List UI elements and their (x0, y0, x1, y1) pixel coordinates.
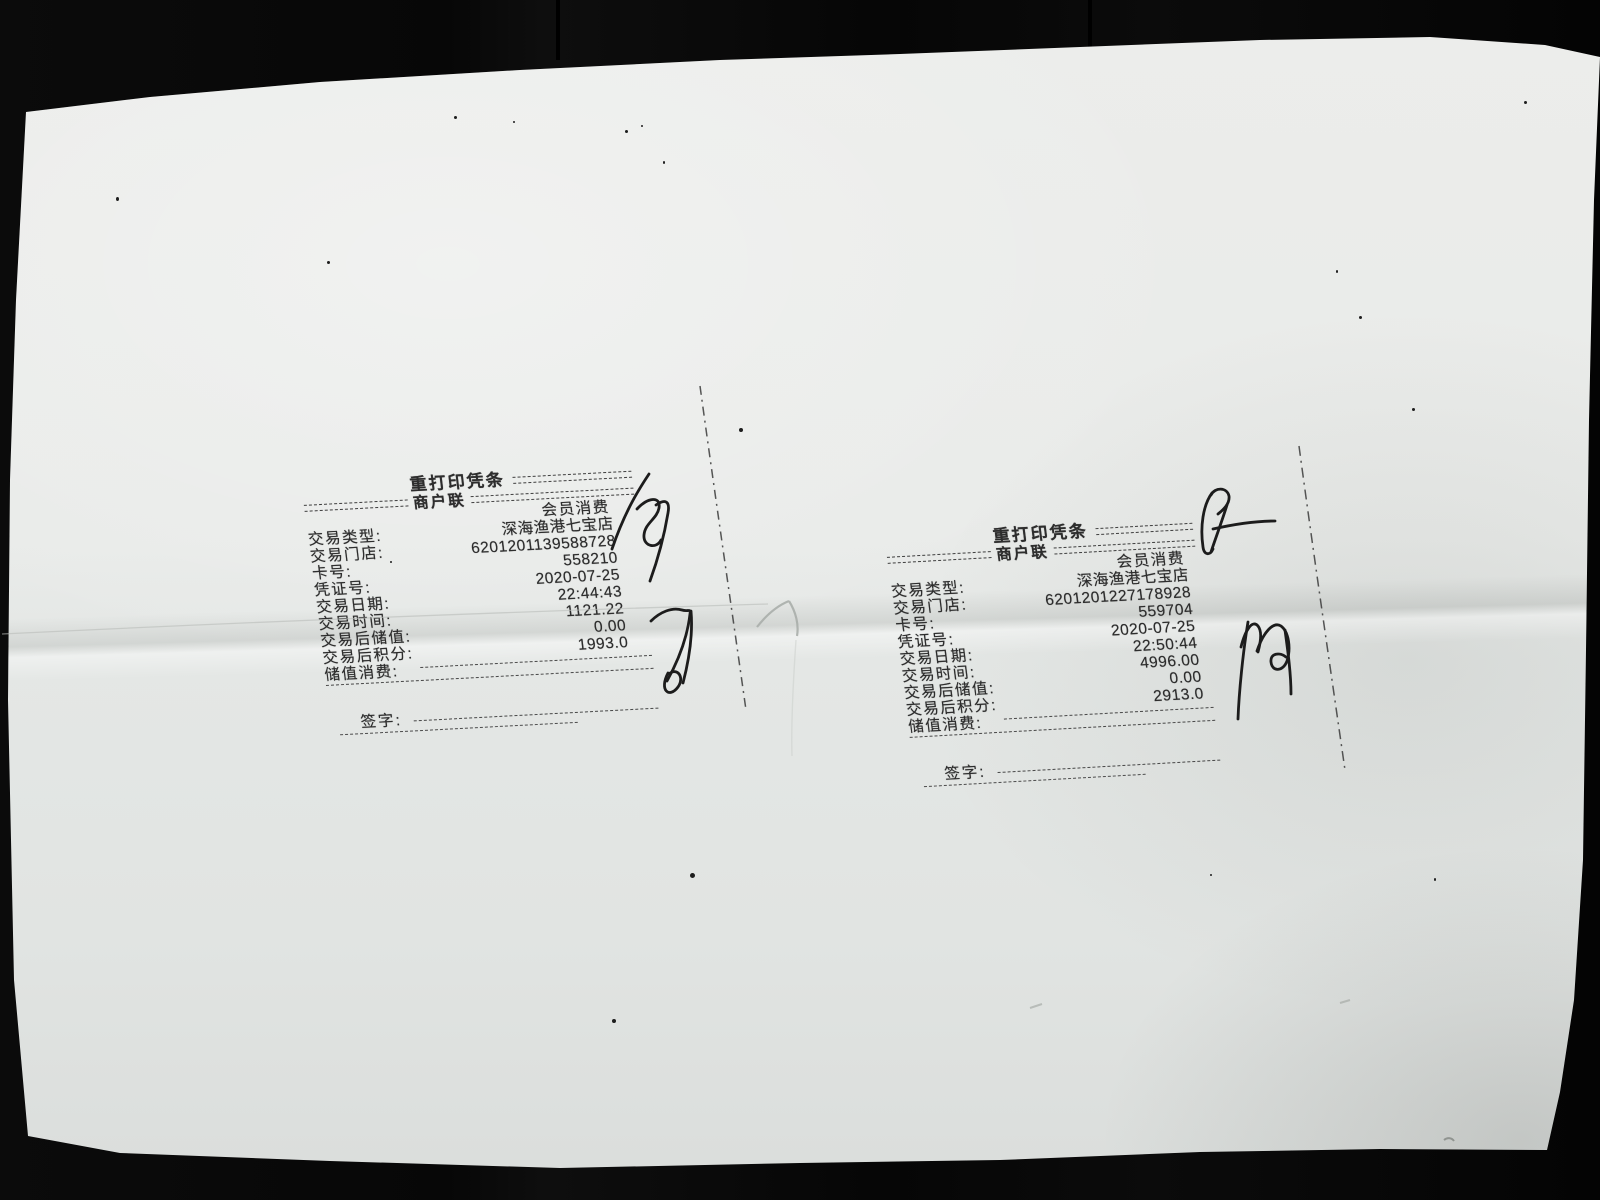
speck (1336, 270, 1338, 273)
paper-sheet (0, 0, 1600, 1200)
signature-dashed-line (412, 695, 658, 722)
speck (1434, 878, 1436, 881)
speck (663, 161, 665, 164)
row-value (1205, 702, 1217, 719)
title-indent (885, 537, 993, 543)
speck (641, 125, 643, 127)
copy-label: 商户联 (990, 540, 1055, 565)
receipt-rows: 交易类型: 深海渔港七宝店 交易门店: 6201201139588728 卡号:… (307, 514, 655, 684)
speck (1359, 316, 1362, 319)
row-value (629, 650, 655, 668)
speck (690, 873, 695, 878)
speck (513, 121, 515, 123)
speck (116, 197, 119, 201)
speck (1412, 408, 1415, 411)
title-indent (302, 485, 410, 491)
horizontal-fold-crease (0, 574, 1600, 683)
receipt-rows: 交易类型: 深海渔港七宝店 交易门店: 6201201227178928 卡号:… (890, 567, 1217, 736)
speck (454, 116, 457, 119)
speck (1210, 874, 1212, 876)
receipt-left: 重打印凭条 商户联 会员消费 交易类型: 深海渔港七宝店 交易门店: 62012… (301, 465, 662, 736)
row-label: 卡号: (311, 563, 353, 582)
copy-label: 商户联 (407, 488, 472, 513)
signature-label: 签字: (329, 708, 403, 734)
background-seam (556, 0, 560, 60)
speck (612, 1019, 616, 1023)
double-dash-rule (304, 499, 409, 511)
double-dash-rule (512, 470, 632, 483)
speck (1524, 101, 1527, 104)
double-dash-rule (1095, 522, 1193, 534)
signature-label: 签字: (913, 760, 987, 786)
double-dash-rule (887, 551, 992, 564)
speck (625, 130, 628, 133)
speck (327, 261, 330, 264)
speck (739, 428, 743, 432)
signature-dashed-line (996, 747, 1220, 773)
receipt-right: 重打印凭条 商户联 会员消费 交易类型: 深海渔港七宝店 交易门店: 62012… (884, 517, 1224, 788)
